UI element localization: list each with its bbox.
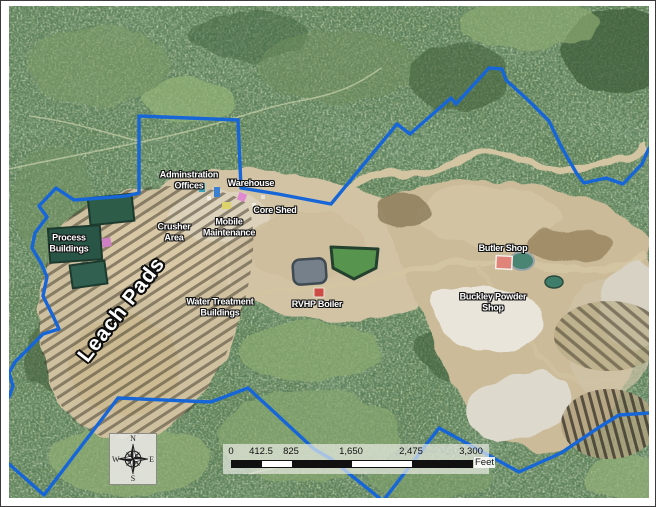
label-line: Area xyxy=(157,232,190,243)
compass-north-label: N xyxy=(130,435,136,443)
map-canvas: Adminstration Offices Warehouse Core She… xyxy=(9,6,649,498)
north-arrow-box: N E S W xyxy=(109,433,157,485)
label-line: Buckley Powder xyxy=(460,292,527,303)
scale-segment xyxy=(352,461,412,467)
compass-south-label: S xyxy=(131,475,135,483)
label-process-buildings: Process Buildings xyxy=(49,233,88,254)
label-core-shed: Core Shed xyxy=(253,205,296,216)
label-line: Shop xyxy=(460,302,527,313)
label-line: Mobile xyxy=(203,217,255,228)
label-butler-shop: Butler Shop xyxy=(479,243,528,254)
scale-tick: 1,650 xyxy=(339,446,363,457)
scale-segment xyxy=(262,461,292,467)
label-line: Buildings xyxy=(49,243,88,254)
label-line: Buildings xyxy=(186,307,253,318)
label-water-treatment-buildings: Water Treatment Buildings xyxy=(186,297,253,318)
label-line: Crusher xyxy=(157,222,190,233)
scale-bar: 0 412.5 825 1,650 2,475 3,300 Feet xyxy=(223,444,489,474)
label-line: Water Treatment xyxy=(186,297,253,308)
map-export-page: Adminstration Offices Warehouse Core She… xyxy=(0,0,656,507)
label-crusher-area: Crusher Area xyxy=(157,222,190,243)
label-mobile-maintenance: Mobile Maintenance xyxy=(203,217,255,238)
scale-segment xyxy=(292,461,352,467)
label-line: Maintenance xyxy=(203,227,255,238)
scale-unit-label: Feet xyxy=(474,457,495,468)
label-line: Process xyxy=(49,233,88,244)
label-line: Offices xyxy=(160,180,218,191)
label-administration-offices: Adminstration Offices xyxy=(160,170,218,191)
aerial-imagery xyxy=(9,6,649,498)
scale-bar-segments xyxy=(231,460,473,468)
label-line: Adminstration xyxy=(160,170,218,181)
label-buckley-powder-shop: Buckley Powder Shop xyxy=(460,292,527,313)
scale-segment xyxy=(232,461,262,467)
label-rvhp-boiler: RVHP Boiler xyxy=(292,299,343,310)
scale-segment xyxy=(412,461,472,467)
scale-tick: 412.5 xyxy=(249,446,273,457)
scale-tick: 3,300 xyxy=(459,446,483,457)
label-warehouse: Warehouse xyxy=(228,178,274,189)
scale-tick: 0 xyxy=(228,446,233,457)
scale-tick: 2,475 xyxy=(399,446,423,457)
compass-west-label: W xyxy=(112,456,120,464)
scale-tick: 825 xyxy=(283,446,299,457)
compass-east-label: E xyxy=(149,456,154,464)
